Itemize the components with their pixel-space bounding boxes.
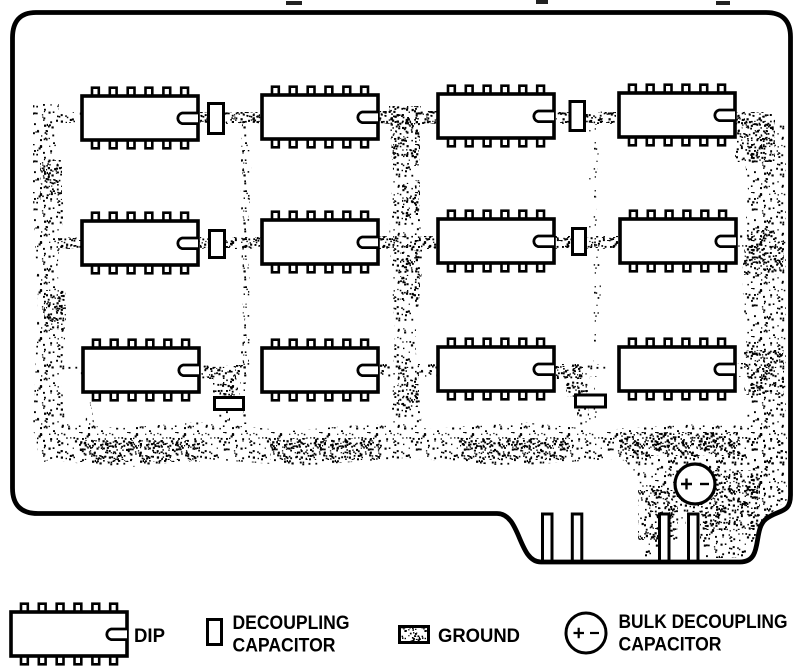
svg-text:CAPACITOR: CAPACITOR: [233, 636, 336, 657]
svg-text:GROUND: GROUND: [438, 626, 520, 647]
svg-text:DECOUPLING: DECOUPLING: [233, 613, 350, 634]
svg-text:BULK DECOUPLING: BULK DECOUPLING: [619, 612, 788, 633]
svg-text:CAPACITOR: CAPACITOR: [619, 635, 722, 656]
svg-text:DIP: DIP: [134, 626, 165, 647]
